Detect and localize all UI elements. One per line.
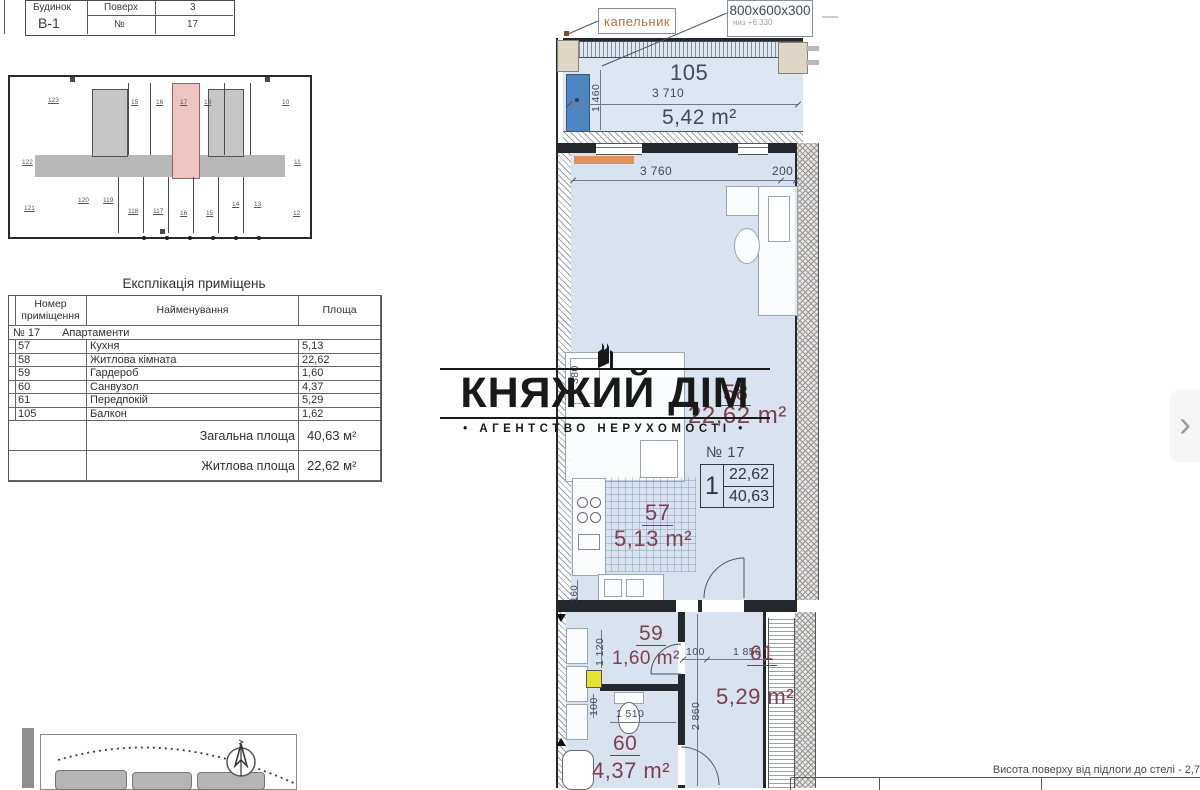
section-mark-icon xyxy=(556,614,566,622)
stair-core xyxy=(92,89,128,157)
axis-dot xyxy=(234,236,238,240)
drip-edge-marker xyxy=(564,31,569,36)
building-overview-plan: 123 15 16 17 18 10 122 11 121 120 119 11… xyxy=(8,75,312,239)
row-num: 57 xyxy=(15,340,87,354)
unit-number: 14 xyxy=(232,201,239,208)
closet-section xyxy=(566,628,588,664)
castle-logo-icon xyxy=(590,338,620,368)
beam-elevation-label: низ +6.330 xyxy=(733,18,812,27)
side-table xyxy=(640,440,678,478)
group-name: Апартаменти xyxy=(62,327,129,339)
unit-number: 18 xyxy=(204,99,211,106)
dimension-line xyxy=(572,180,795,181)
stamp-flat-label: № 17 xyxy=(706,444,745,461)
ceiling-height-note: Висота поверху від підлоги до стелі - 2,… xyxy=(900,764,1200,776)
column xyxy=(557,40,579,72)
row-num: 60 xyxy=(15,381,87,395)
axis-dot xyxy=(188,236,192,240)
header-cell-name: Найменування xyxy=(87,296,299,326)
unit-divider xyxy=(143,177,144,233)
explication-table: Номер приміщення Найменування Площа № 17… xyxy=(8,295,382,482)
wall-pier xyxy=(265,77,270,82)
wall-pier xyxy=(70,77,75,82)
wall-pier xyxy=(160,229,165,234)
kitchen-dim: 160 xyxy=(569,585,580,602)
window xyxy=(738,143,768,155)
floor-label: Поверх xyxy=(104,2,138,13)
cabinet-door xyxy=(626,579,644,597)
building-value: В-1 xyxy=(38,15,60,31)
balcony-height-dim: 1 460 xyxy=(590,84,602,112)
header-cell-area: Площа xyxy=(299,296,381,326)
stamp-room-count: 1 xyxy=(701,465,724,507)
unit-divider xyxy=(118,177,119,233)
stair-core xyxy=(208,89,244,157)
stove-icon xyxy=(577,497,588,508)
unit-number: 10 xyxy=(282,99,289,106)
monitor xyxy=(768,196,790,242)
axis-dot xyxy=(211,236,215,240)
living-label: Житлова площа xyxy=(87,451,299,481)
footer-table-divider xyxy=(1041,778,1042,790)
unit-divider xyxy=(224,83,225,155)
unit-divider xyxy=(150,83,151,155)
balcony-railing xyxy=(563,41,803,58)
footer-table-divider xyxy=(879,778,880,790)
row-area: 1,62 xyxy=(299,408,381,422)
unit-number: 119 xyxy=(103,197,113,204)
axis-dot xyxy=(165,236,169,240)
explication-title: Експлікація приміщень xyxy=(8,276,380,291)
unit-divider xyxy=(243,177,244,233)
kitchen-sink xyxy=(578,534,600,550)
balcony-area: 5,42 m² xyxy=(662,106,737,130)
number-label: № xyxy=(114,19,125,30)
title-block-edge-line xyxy=(4,0,5,34)
logo-subtitle: • АГЕНТСТВО НЕРУХОМОСТІ • xyxy=(440,423,770,435)
wall-stub xyxy=(806,46,819,51)
apartment-stamp: 1 22,62 40,63 xyxy=(700,464,774,508)
living-value: 22,62 м² xyxy=(299,451,381,481)
window-line xyxy=(738,147,768,148)
row-name: Гардероб xyxy=(87,367,299,381)
site-block xyxy=(132,772,192,790)
balcony-width-dim: 3 710 xyxy=(652,86,684,100)
wall-stub xyxy=(806,60,819,65)
stamp-living-area: 22,62 xyxy=(724,465,773,487)
wardrobe-number: 59 xyxy=(636,622,666,646)
footer-table-fragment xyxy=(790,777,1200,790)
unit-number: 16 xyxy=(156,99,163,106)
north-arrow-icon xyxy=(222,736,260,782)
unit-number: 13 xyxy=(254,201,261,208)
unit-divider xyxy=(218,177,219,233)
unit-divider xyxy=(193,177,194,233)
site-bar xyxy=(22,728,34,788)
header-cell-number: Номер приміщення xyxy=(15,296,87,326)
title-block-divider xyxy=(87,0,88,34)
floor-value: 3 xyxy=(190,2,196,13)
dash-mark xyxy=(822,16,838,18)
living-blank xyxy=(9,451,87,481)
bathroom-number: 60 xyxy=(610,732,640,756)
axis-dot xyxy=(257,236,261,240)
row-name: Житлова кімната xyxy=(87,354,299,368)
kitchen-area: 5,13 m² xyxy=(614,526,692,552)
section-mark-icon xyxy=(556,738,566,746)
door-opening xyxy=(702,600,744,612)
unit-divider xyxy=(250,83,251,155)
highlighted-unit-17 xyxy=(172,83,200,179)
unit-number: 15 xyxy=(131,99,138,106)
hall-area: 5,29 m² xyxy=(716,684,794,710)
beam-size-label: 800х600х300 xyxy=(728,3,812,18)
group-row: № 17 Апартаменти xyxy=(9,326,381,340)
unit-number: 123 xyxy=(48,97,59,104)
logo-title: КНЯЖИЙ ДІМ xyxy=(440,372,770,415)
bathtub-icon xyxy=(562,750,594,790)
living-offset-dim: 200 xyxy=(772,164,793,178)
drip-callout-label: капельник xyxy=(604,14,670,29)
drip-leader-line xyxy=(568,21,598,34)
unit-number: 117 xyxy=(153,208,163,215)
stove-icon xyxy=(577,512,588,523)
wall xyxy=(600,684,678,691)
title-block-divider xyxy=(155,0,156,34)
ac-unit-dot xyxy=(575,98,579,102)
wall-edge xyxy=(815,612,816,788)
wardrobe-door-dim: 100 xyxy=(686,646,705,658)
wall xyxy=(678,674,685,745)
next-image-button[interactable]: › xyxy=(1170,390,1200,462)
exterior-wall xyxy=(797,143,818,600)
row-name: Передпокій xyxy=(87,394,299,408)
bathroom-area: 4,37 m² xyxy=(592,758,670,784)
total-label: Загальна площа xyxy=(87,421,299,451)
exterior-wall xyxy=(795,612,815,788)
unit-number: 121 xyxy=(24,205,35,212)
beam-callout: 800х600х300 низ +6.330 xyxy=(727,0,813,37)
door-opening xyxy=(676,600,698,612)
stove-icon xyxy=(590,512,601,523)
number-value: 17 xyxy=(187,19,198,30)
unit-number: 120 xyxy=(78,197,89,204)
row-num: 61 xyxy=(15,394,87,408)
wall-edge xyxy=(818,143,819,600)
hall-number: 61 xyxy=(747,642,777,666)
total-value: 40,63 м² xyxy=(299,421,381,451)
closet-section xyxy=(566,666,588,702)
bathroom-width-dim: 1 510 xyxy=(616,708,644,720)
kitchen-number: 57 xyxy=(642,500,673,526)
tv-unit xyxy=(726,186,760,216)
title-block-divider xyxy=(87,15,233,16)
stamp-total-area: 40,63 xyxy=(724,487,773,508)
wall xyxy=(678,612,685,642)
chair xyxy=(734,228,760,264)
unit-number: 118 xyxy=(128,208,138,215)
radiator xyxy=(574,156,634,164)
group-number: № 17 xyxy=(13,327,40,339)
dimension-line xyxy=(610,722,676,723)
bathroom-door-dim: 100 xyxy=(588,697,600,716)
electrical-box xyxy=(586,670,602,688)
chevron-right-icon: › xyxy=(1179,406,1191,442)
row-name: Балкон xyxy=(87,408,299,422)
site-block xyxy=(55,770,127,790)
row-num: 59 xyxy=(15,367,87,381)
logo-rule xyxy=(440,417,770,419)
window xyxy=(596,143,642,155)
building-label: Будинок xyxy=(33,2,71,13)
row-num: 58 xyxy=(15,354,87,368)
wardrobe-height-dim: 1 120 xyxy=(594,638,606,666)
wardrobe-area: 1,60 m² xyxy=(612,648,680,670)
living-width-dim: 3 760 xyxy=(640,164,672,178)
dimension-line xyxy=(568,104,798,105)
unit-number: 122 xyxy=(22,159,33,166)
unit-number: 11 xyxy=(294,159,301,166)
unit-number-highlighted: 17 xyxy=(180,99,187,106)
unit-number: 12 xyxy=(293,210,300,217)
column xyxy=(778,42,808,74)
cabinet-door xyxy=(604,579,622,597)
row-area: 1,60 xyxy=(299,367,381,381)
row-area: 5,13 xyxy=(299,340,381,354)
unit-divider xyxy=(128,83,129,155)
row-num: 105 xyxy=(15,408,87,422)
row-area: 4,37 xyxy=(299,381,381,395)
stove-icon xyxy=(590,497,601,508)
row-area: 5,29 xyxy=(299,394,381,408)
total-blank xyxy=(9,421,87,451)
agency-logo: КНЯЖИЙ ДІМ • АГЕНТСТВО НЕРУХОМОСТІ • xyxy=(440,338,770,435)
unit-divider xyxy=(168,177,169,233)
unit-number: 15 xyxy=(206,210,213,217)
row-area: 22,62 xyxy=(299,354,381,368)
closet-section xyxy=(566,704,588,740)
row-name: Кухня xyxy=(87,340,299,354)
balcony-number: 105 xyxy=(668,60,710,86)
row-name: Санвузол xyxy=(87,381,299,395)
kitchen-counter xyxy=(572,478,606,576)
dimension-line xyxy=(697,614,698,786)
axis-dot xyxy=(142,236,146,240)
corridor xyxy=(35,155,285,177)
window-line xyxy=(596,147,642,148)
hall-height-dim: 2 860 xyxy=(690,702,702,730)
unit-number: 16 xyxy=(180,210,187,217)
